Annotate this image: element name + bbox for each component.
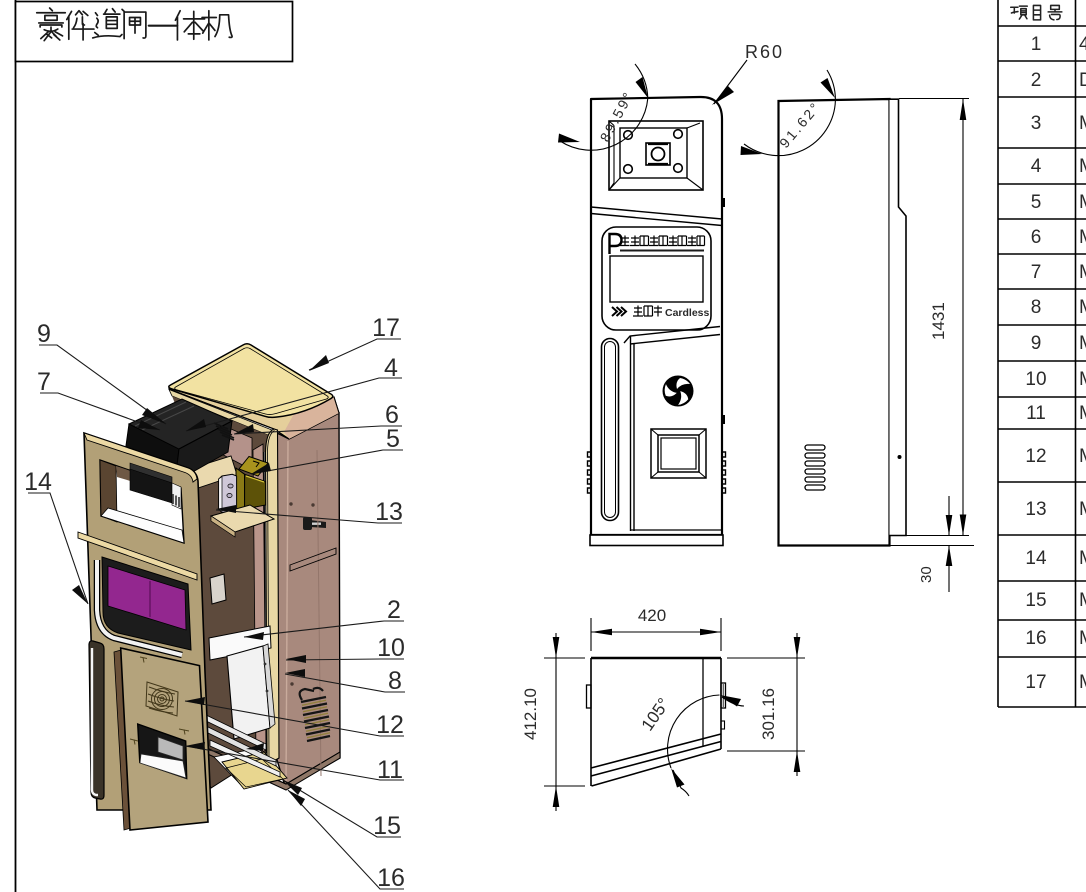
svg-text:7: 7 [37,368,51,396]
svg-text:420: 420 [638,606,666,625]
svg-text:8: 8 [1031,297,1042,318]
svg-text:8: 8 [388,667,402,695]
svg-text:M: M [1079,590,1086,611]
svg-text:4: 4 [1031,156,1042,177]
svg-text:13: 13 [375,498,403,526]
svg-text:14: 14 [24,468,52,496]
svg-text:412.10: 412.10 [521,688,540,740]
svg-text:M: M [1079,446,1086,467]
svg-text:M: M [1079,333,1086,354]
svg-text:14: 14 [1025,548,1047,569]
svg-text:12: 12 [1025,446,1046,467]
svg-text:2: 2 [387,596,401,624]
svg-text:M: M [1079,672,1086,693]
svg-text:1431: 1431 [929,302,948,340]
svg-text:M: M [1079,262,1086,283]
svg-text:11: 11 [377,756,403,784]
svg-text:6: 6 [1031,227,1042,248]
svg-text:10: 10 [1025,369,1046,390]
svg-text:M: M [1079,227,1086,248]
svg-text:13: 13 [1025,499,1046,520]
svg-text:7: 7 [1031,262,1042,283]
svg-text:9: 9 [37,320,51,348]
svg-text:11: 11 [1026,403,1046,424]
svg-text:M: M [1079,113,1086,134]
svg-text:17: 17 [1025,672,1046,693]
svg-text:5: 5 [1031,192,1042,213]
svg-text:3: 3 [1031,113,1042,134]
svg-text:15: 15 [1025,590,1046,611]
svg-text:R60: R60 [745,42,784,62]
svg-text:M: M [1079,403,1086,424]
svg-text:30: 30 [918,566,935,583]
svg-text:12: 12 [376,711,404,739]
svg-text:M: M [1079,192,1086,213]
svg-text:M: M [1079,369,1086,390]
svg-text:17: 17 [372,314,400,342]
svg-text:9: 9 [1031,333,1042,354]
svg-text:M: M [1079,628,1086,649]
svg-text:1: 1 [1031,34,1042,55]
svg-text:M: M [1079,499,1086,520]
svg-text:2: 2 [1031,70,1042,91]
svg-text:M: M [1079,156,1086,177]
svg-text:301.16: 301.16 [759,688,778,740]
svg-text:M: M [1079,297,1086,318]
svg-text:15: 15 [373,812,401,840]
svg-text:D: D [1079,70,1086,91]
svg-text:10: 10 [377,634,405,662]
svg-text:16: 16 [377,864,405,892]
svg-text:4: 4 [384,354,398,382]
svg-text:M: M [1079,548,1086,569]
svg-text:4: 4 [1079,34,1086,55]
svg-text:16: 16 [1025,628,1046,649]
svg-text:5: 5 [386,425,400,453]
svg-text:Cardless: Cardless [665,307,710,319]
